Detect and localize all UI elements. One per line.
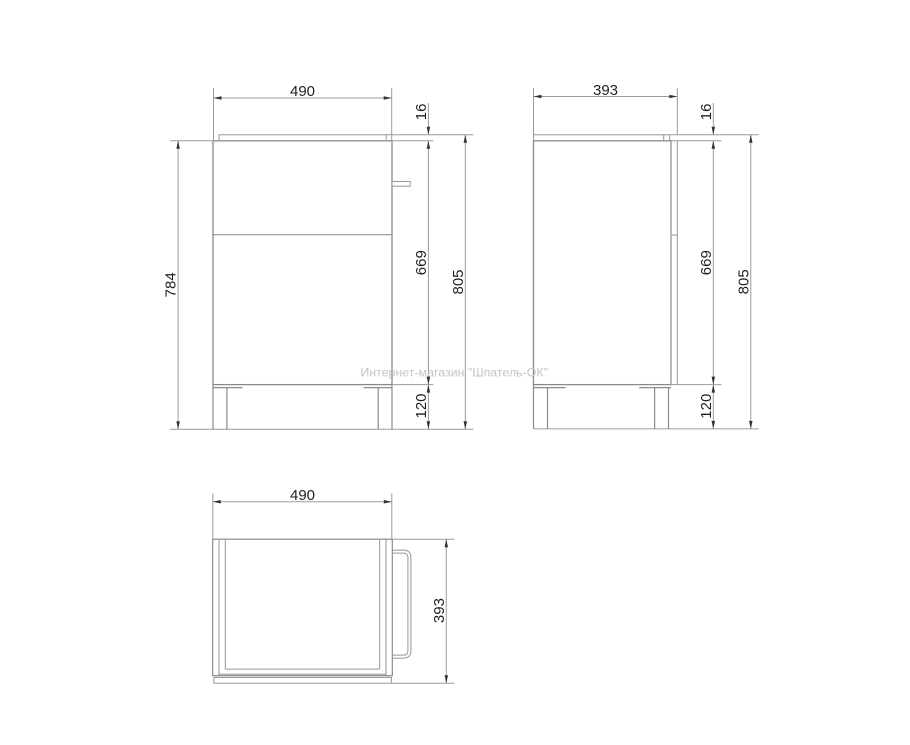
svg-text:393: 393 bbox=[431, 598, 448, 623]
svg-text:784: 784 bbox=[163, 272, 180, 297]
svg-text:16: 16 bbox=[413, 104, 430, 121]
svg-text:120: 120 bbox=[413, 393, 430, 418]
svg-text:393: 393 bbox=[593, 82, 618, 99]
svg-text:Интернет-магазин "Шпатель-ОК": Интернет-магазин "Шпатель-ОК" bbox=[360, 366, 548, 380]
svg-text:805: 805 bbox=[450, 269, 467, 294]
svg-text:805: 805 bbox=[735, 269, 752, 294]
svg-text:120: 120 bbox=[698, 394, 715, 419]
svg-text:669: 669 bbox=[698, 250, 715, 275]
svg-text:490: 490 bbox=[290, 487, 315, 504]
svg-text:490: 490 bbox=[290, 83, 315, 100]
svg-text:16: 16 bbox=[698, 104, 715, 121]
svg-text:669: 669 bbox=[413, 250, 430, 275]
